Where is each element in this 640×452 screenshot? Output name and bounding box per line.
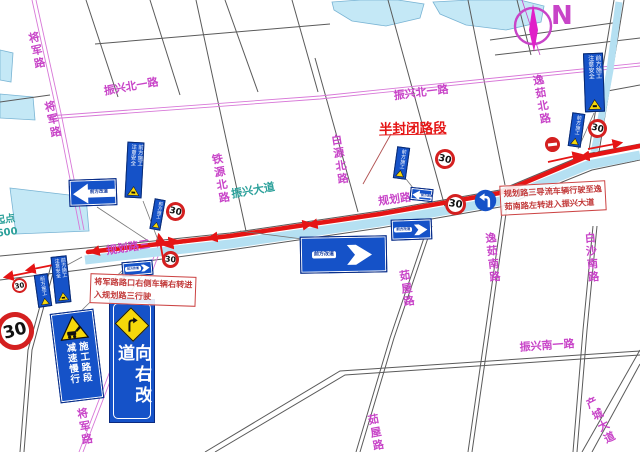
board-text: 注意安全 (128, 144, 135, 166)
roadwork-triangle-icon (57, 313, 90, 341)
sign-text: 前方改道 (90, 188, 108, 195)
closed-section-label: 半封闭路段 (379, 116, 447, 137)
warning-triangle-icon (40, 297, 50, 305)
board-text: 前方施工 (573, 115, 581, 136)
distance-note: 距起点 约600 (0, 212, 18, 242)
warning-triangle-icon (570, 137, 580, 145)
detour-right-arrow-sign: 前方改道 (391, 218, 433, 240)
detour-left-arrow-sign: 前方改道 (409, 187, 433, 202)
board-text: 前方施工 (38, 276, 46, 297)
detour-right-text: 向右改道 (115, 344, 149, 418)
warning-triangle-icon (127, 186, 141, 197)
warning-triangle-icon (151, 221, 160, 228)
warning-triangle-icon (395, 169, 405, 177)
sign-text-band: 前方改道 (125, 266, 141, 272)
turn-left-sign (474, 189, 497, 212)
right-arrow-icon (345, 239, 376, 270)
detour-right-sign: 向右改道 (109, 299, 155, 423)
north-label: N (551, 1, 573, 31)
note-jiangjun-box: 将军路路口右侧车辆右转进 入规划路三行驶 (90, 273, 197, 307)
board-text: 前方施工 (59, 258, 66, 278)
board-text: 前方施工 (594, 55, 601, 79)
right-arrow-icon (412, 221, 429, 238)
detour-left-arrow-sign: 前方改道 (69, 178, 118, 207)
construction-caution-board: 前方施工 注意安全 (583, 53, 605, 113)
detour-right-arrow-sign: 前方改道 (300, 235, 388, 274)
note-guihua-box: 规划路三导流车辆行驶至逸 茹南路左转进入振兴大道 (499, 180, 607, 216)
warning-triangle-icon (588, 99, 602, 110)
construction-caution-board: 前方施工 注意安全 (125, 142, 145, 199)
sign-text-band: 前方改道 (394, 227, 412, 233)
lane-shift-diamond-icon (115, 307, 150, 342)
board-text: 前方施工 (398, 149, 406, 170)
board-text: 前方施工 (135, 144, 142, 166)
traffic-detour-map: 30 30 30 30 30 30 30 前方施工 注意安全 前方施工 注意安全… (0, 0, 640, 452)
warning-triangle-icon (57, 291, 69, 301)
board-text: 注意安全 (586, 55, 593, 79)
board-text: 前方施工 (154, 201, 162, 220)
sign-text-band: 前方改道 (312, 251, 336, 258)
detour-road-highlight (85, 2, 640, 260)
right-arrow-icon (141, 262, 151, 274)
